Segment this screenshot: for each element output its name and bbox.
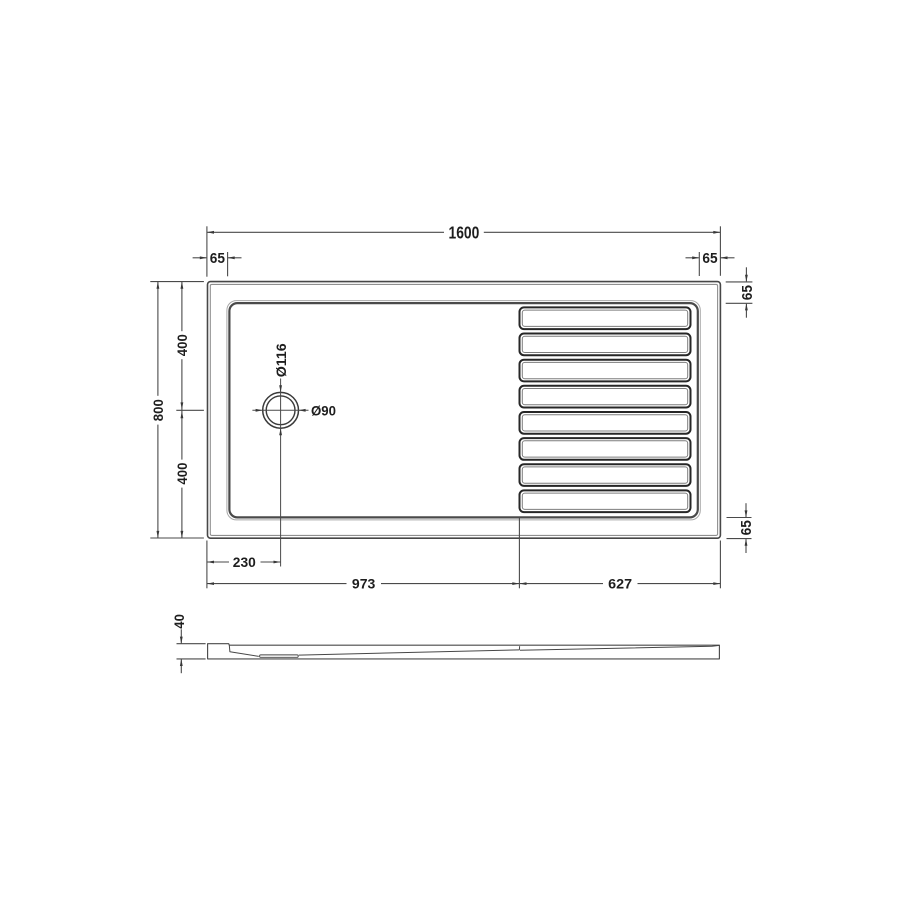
svg-text:800: 800 xyxy=(150,399,166,421)
svg-text:Ø90: Ø90 xyxy=(311,402,336,418)
svg-text:400: 400 xyxy=(174,462,190,484)
svg-text:230: 230 xyxy=(233,555,256,570)
svg-text:973: 973 xyxy=(352,577,376,592)
svg-text:1600: 1600 xyxy=(449,223,480,243)
svg-text:627: 627 xyxy=(608,577,632,592)
svg-text:400: 400 xyxy=(174,334,190,356)
svg-text:Ø116: Ø116 xyxy=(273,343,289,377)
svg-text:65: 65 xyxy=(210,251,225,267)
svg-text:65: 65 xyxy=(739,520,755,535)
svg-text:65: 65 xyxy=(740,285,756,300)
svg-text:40: 40 xyxy=(172,614,187,629)
svg-text:65: 65 xyxy=(702,251,717,267)
